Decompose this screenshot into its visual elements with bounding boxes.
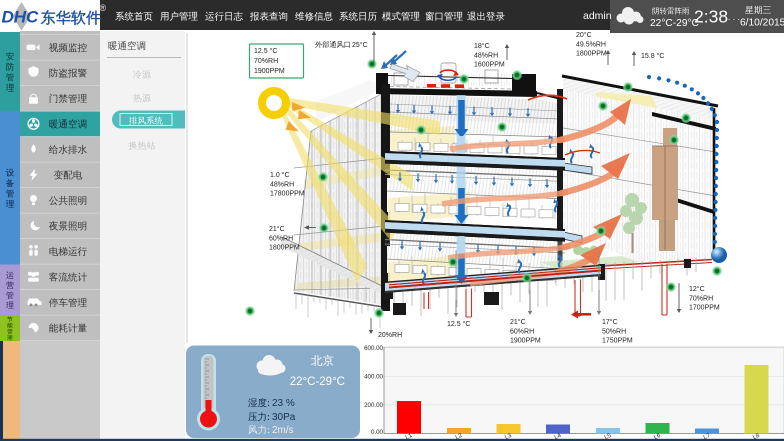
svg-text:25°C: 25°C [352, 41, 368, 49]
svg-text:18°C: 18°C [474, 42, 490, 50]
svg-text:1750PPM: 1750PPM [602, 338, 633, 345]
svg-text:12.5 °C: 12.5 °C [447, 320, 470, 328]
svg-text:1900PPM: 1900PPM [510, 338, 541, 345]
svg-text:50%RH: 50%RH [602, 328, 626, 335]
svg-text:20%RH: 20%RH [378, 332, 402, 339]
svg-text:0.00: 0.00 [371, 429, 384, 436]
svg-text:200.00: 200.00 [364, 402, 383, 409]
svg-text:20°C: 20°C [576, 31, 592, 39]
svg-text:1.0 °C: 1.0 °C [270, 171, 290, 179]
svg-text:6/10/2015: 6/10/2015 [740, 18, 784, 29]
svg-text:12°C: 12°C [689, 285, 705, 293]
svg-text:400.00: 400.00 [364, 374, 383, 381]
svg-text:30Pa: 30Pa [272, 412, 296, 423]
svg-text:21°C: 21°C [510, 318, 526, 326]
svg-text:22°C-29°C: 22°C-29°C [650, 18, 699, 29]
svg-text:DHC: DHC [2, 8, 40, 27]
svg-text:®: ® [100, 3, 107, 13]
svg-text:70%RH: 70%RH [689, 295, 713, 302]
svg-text:2m/s: 2m/s [272, 425, 294, 436]
svg-text:48%RH: 48%RH [474, 52, 498, 59]
svg-text:1900PPM: 1900PPM [254, 68, 285, 75]
svg-text:1600PPM: 1600PPM [474, 62, 505, 69]
svg-text:15.8 °C: 15.8 °C [641, 52, 664, 60]
svg-text:1800PPM: 1800PPM [576, 51, 607, 58]
svg-text:17800PPM: 17800PPM [270, 191, 305, 198]
svg-text:60%RH: 60%RH [269, 235, 293, 242]
svg-text:2:38: 2:38 [694, 7, 728, 27]
svg-text:1800PPM: 1800PPM [269, 245, 300, 252]
svg-text:49.5%RH: 49.5%RH [576, 41, 606, 48]
svg-text:17°C: 17°C [602, 318, 618, 326]
svg-text:1700PPM: 1700PPM [689, 305, 720, 312]
svg-text:60%RH: 60%RH [510, 328, 534, 335]
svg-text:. . .: . . . [728, 12, 740, 22]
svg-text:70%RH: 70%RH [254, 58, 278, 65]
svg-text:48%RH: 48%RH [270, 181, 294, 188]
svg-text:admin: admin [583, 10, 612, 22]
svg-text:23 %: 23 % [272, 398, 295, 409]
svg-text:22°C-29°C: 22°C-29°C [290, 376, 345, 388]
svg-text:21°C: 21°C [269, 225, 285, 233]
svg-text:600.00: 600.00 [364, 345, 383, 352]
svg-text:12.5 °C: 12.5 °C [254, 47, 277, 55]
